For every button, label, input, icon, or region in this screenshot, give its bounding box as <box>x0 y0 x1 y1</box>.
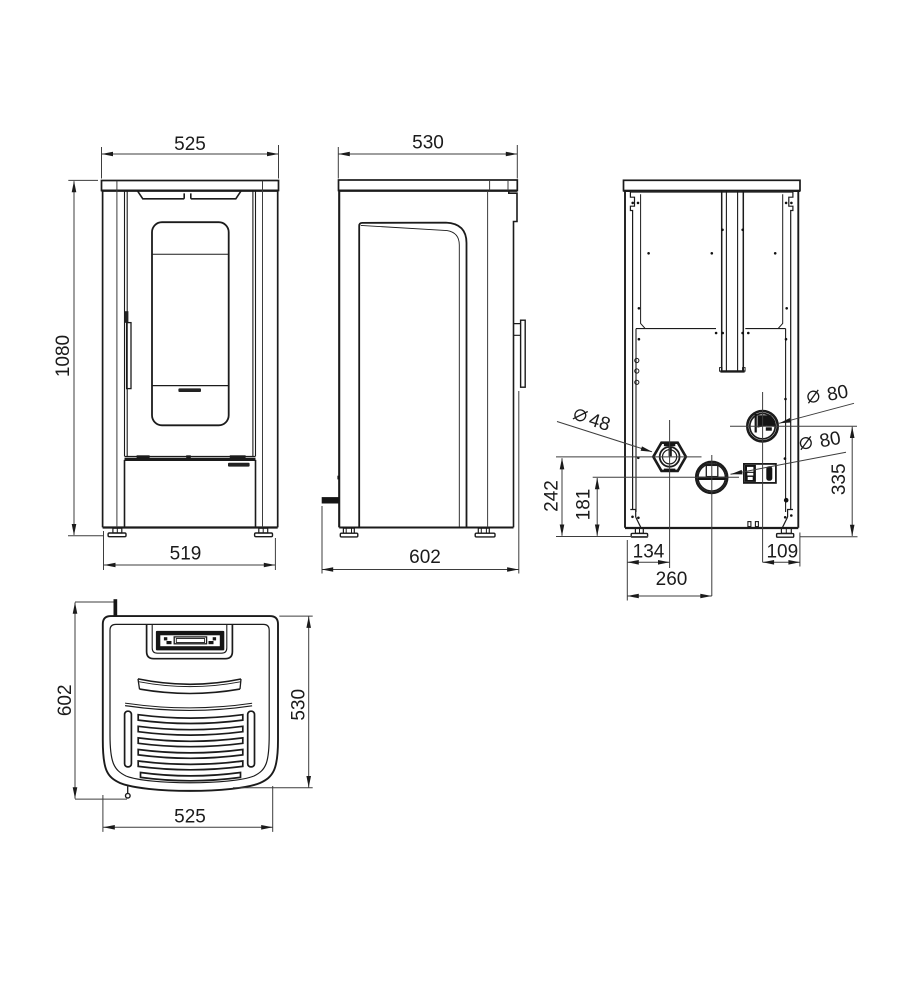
svg-text:80: 80 <box>825 381 849 405</box>
svg-text:530: 530 <box>289 689 310 721</box>
svg-text:602: 602 <box>409 547 441 568</box>
svg-text:530: 530 <box>412 133 444 154</box>
svg-text:519: 519 <box>170 544 202 565</box>
svg-text:109: 109 <box>766 542 798 563</box>
svg-text:181: 181 <box>574 489 595 521</box>
svg-text:260: 260 <box>656 569 688 590</box>
svg-text:525: 525 <box>174 134 206 155</box>
svg-text:242: 242 <box>541 480 562 512</box>
svg-text:335: 335 <box>829 463 850 495</box>
svg-text:602: 602 <box>55 684 76 716</box>
svg-text:134: 134 <box>633 542 665 563</box>
svg-text:1080: 1080 <box>53 335 74 377</box>
svg-text:525: 525 <box>174 807 206 828</box>
svg-text:80: 80 <box>818 428 842 452</box>
